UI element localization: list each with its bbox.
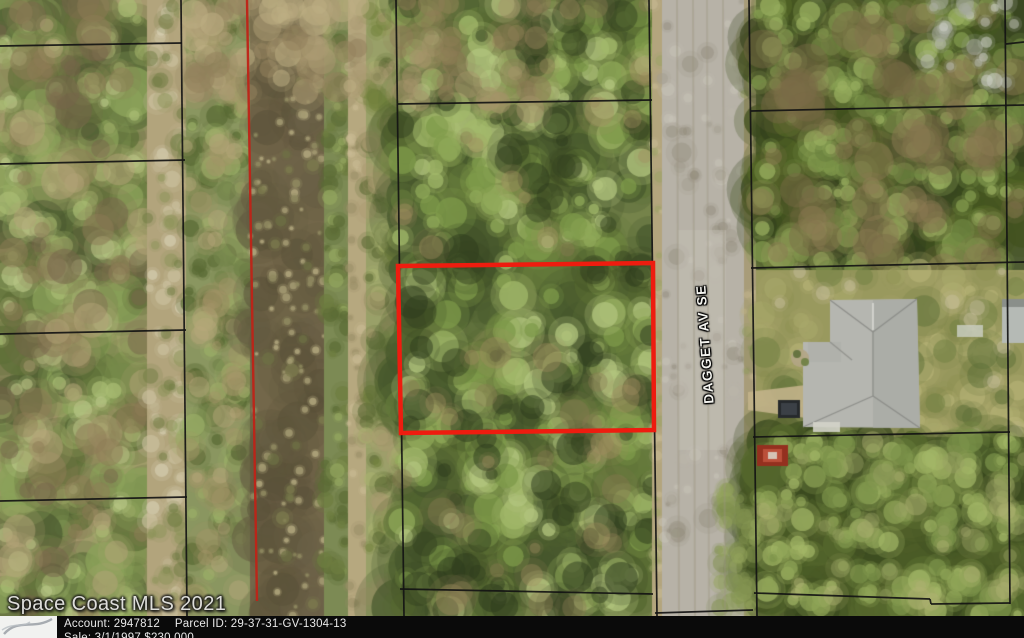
highlighted-parcel-rect (398, 263, 654, 433)
parcel-line (0, 497, 187, 501)
info-line-1: Account: 2947812Parcel ID: 29-37-31-GV-1… (64, 618, 346, 632)
parcel-line (751, 105, 1024, 111)
parcel-line (751, 262, 1024, 268)
parcel-line (931, 603, 1010, 604)
parcel-line (1005, 0, 1010, 604)
account-text: Account: 2947812 (64, 618, 160, 630)
parcel-line (1006, 42, 1024, 44)
info-bar: Account: 2947812Parcel ID: 29-37-31-GV-1… (0, 616, 1024, 638)
parcel-line (398, 100, 652, 104)
mls-aerial-map-screenshot: DAGGET AV SE Space Coast MLS 2021 Accoun… (0, 0, 1024, 638)
parcel-line (753, 432, 1010, 437)
parcel-boundary-overlay (0, 0, 1024, 616)
parcel-line (749, 0, 757, 616)
parcel-line (181, 0, 187, 616)
parcel-line (0, 160, 185, 164)
mls-logo-swoosh-icon (0, 616, 57, 638)
parcel-line (0, 330, 186, 334)
parcel-info-text: Account: 2947812Parcel ID: 29-37-31-GV-1… (57, 616, 346, 638)
mls-logo (0, 616, 57, 638)
easement-red-line (247, 0, 257, 601)
parcel-line (655, 610, 753, 613)
mls-watermark: Space Coast MLS 2021 (7, 593, 226, 616)
parcel-line (0, 43, 182, 46)
parcel-line (930, 599, 931, 604)
parcel-line (754, 593, 930, 599)
sale-text: Sale: 3/1/1997 $230,000 (64, 632, 346, 638)
parcel-line (400, 589, 653, 594)
parcel-id-text: Parcel ID: 29-37-31-GV-1304-13 (175, 618, 347, 630)
